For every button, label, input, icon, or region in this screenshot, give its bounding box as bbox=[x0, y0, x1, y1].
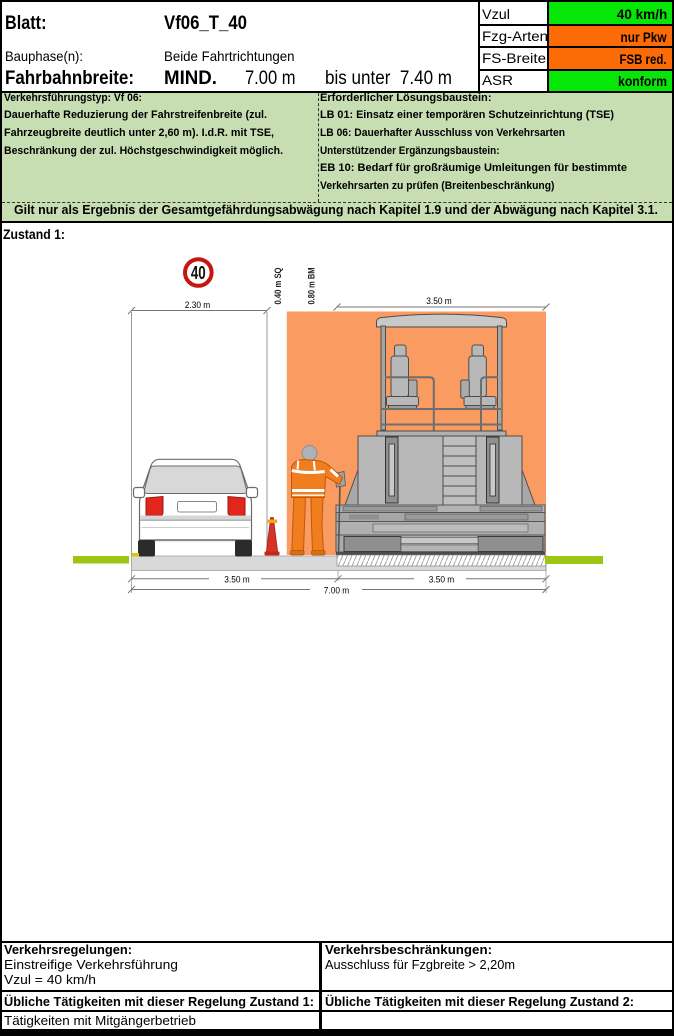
svg-text:0.80 m BM: 0.80 m BM bbox=[307, 268, 317, 305]
svg-text:2.30 m: 2.30 m bbox=[185, 300, 211, 311]
svg-text:3.50 m: 3.50 m bbox=[429, 574, 455, 585]
svg-text:3.50 m: 3.50 m bbox=[426, 296, 452, 307]
svg-text:3.50 m: 3.50 m bbox=[224, 574, 250, 585]
svg-text:40: 40 bbox=[191, 262, 206, 283]
svg-text:7.00 m: 7.00 m bbox=[324, 585, 350, 596]
svg-text:0.40 m SQ: 0.40 m SQ bbox=[273, 267, 283, 304]
